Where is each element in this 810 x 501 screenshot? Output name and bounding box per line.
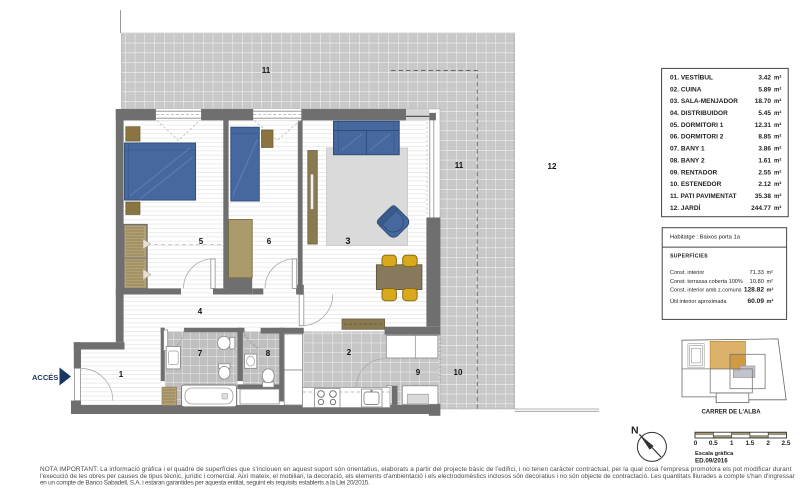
svg-text:en un compte de Banco Sabadell: en un compte de Banco Sabadell, S.A. i e… bbox=[40, 480, 370, 487]
svg-text:m²: m² bbox=[774, 86, 781, 93]
svg-text:04. DISTRIBUIDOR: 04. DISTRIBUIDOR bbox=[670, 110, 728, 117]
svg-text:12: 12 bbox=[548, 162, 557, 171]
svg-text:1.5: 1.5 bbox=[745, 440, 754, 447]
svg-text:10.80: 10.80 bbox=[749, 279, 764, 285]
svg-text:35.38: 35.38 bbox=[755, 193, 772, 200]
svg-text:07. BANY 1: 07. BANY 1 bbox=[670, 146, 705, 153]
svg-text:SUPERFÍCIES: SUPERFÍCIES bbox=[670, 252, 708, 260]
svg-text:m²: m² bbox=[774, 157, 781, 164]
svg-text:09. RENTADOR: 09. RENTADOR bbox=[670, 169, 717, 176]
svg-text:12. JARDÍ: 12. JARDÍ bbox=[670, 203, 701, 212]
svg-text:5.89: 5.89 bbox=[758, 86, 771, 93]
svg-text:11: 11 bbox=[455, 161, 464, 170]
svg-text:m²: m² bbox=[774, 110, 781, 117]
svg-text:2.55: 2.55 bbox=[758, 169, 771, 176]
svg-text:2: 2 bbox=[347, 348, 352, 357]
svg-text:3: 3 bbox=[345, 236, 350, 246]
svg-text:128.82: 128.82 bbox=[744, 287, 765, 294]
svg-text:60.09: 60.09 bbox=[747, 298, 764, 305]
svg-text:Habitatge : Baixos porta 1a: Habitatge : Baixos porta 1a bbox=[670, 235, 741, 241]
svg-text:m²: m² bbox=[774, 146, 781, 153]
svg-text:10. ESTENEDOR: 10. ESTENEDOR bbox=[670, 181, 722, 188]
svg-text:01. VESTÍBUL: 01. VESTÍBUL bbox=[670, 73, 713, 82]
svg-text:6: 6 bbox=[267, 237, 272, 246]
svg-text:2.5: 2.5 bbox=[782, 440, 791, 447]
svg-text:m²: m² bbox=[774, 205, 781, 212]
svg-text:m²: m² bbox=[767, 279, 774, 285]
svg-text:18.70: 18.70 bbox=[755, 98, 772, 105]
svg-text:3.86: 3.86 bbox=[758, 146, 771, 153]
svg-text:m²: m² bbox=[767, 298, 774, 305]
svg-text:m²: m² bbox=[774, 134, 781, 141]
svg-text:5: 5 bbox=[199, 237, 204, 246]
svg-text:m²: m² bbox=[774, 169, 781, 176]
svg-text:CARRER DE L'ALBA: CARRER DE L'ALBA bbox=[701, 410, 761, 416]
svg-text:7: 7 bbox=[198, 349, 203, 358]
svg-text:Escala gràfica: Escala gràfica bbox=[695, 451, 734, 457]
svg-text:08. BANY 2: 08. BANY 2 bbox=[670, 157, 705, 164]
svg-text:9: 9 bbox=[416, 368, 421, 377]
svg-text:Const. terrassa coberta 100%: Const. terrassa coberta 100% bbox=[670, 279, 743, 285]
svg-text:m²: m² bbox=[774, 75, 781, 82]
svg-text:0.5: 0.5 bbox=[709, 440, 718, 447]
svg-text:10: 10 bbox=[454, 368, 463, 377]
svg-text:71.33: 71.33 bbox=[749, 270, 764, 276]
svg-text:4: 4 bbox=[198, 307, 203, 316]
svg-text:Útil interior aproximada: Útil interior aproximada bbox=[670, 298, 727, 305]
svg-text:06. DORMITORI 2: 06. DORMITORI 2 bbox=[670, 134, 724, 141]
svg-text:0: 0 bbox=[694, 440, 698, 447]
svg-text:11: 11 bbox=[262, 66, 271, 75]
svg-text:12.31: 12.31 bbox=[755, 122, 772, 129]
svg-text:m²: m² bbox=[774, 122, 781, 129]
svg-text:05. DORMITORI 1: 05. DORMITORI 1 bbox=[670, 122, 724, 129]
svg-text:Const. interior amb z.comuns: Const. interior amb z.comuns bbox=[670, 288, 742, 294]
svg-text:03. SALA-MENJADOR: 03. SALA-MENJADOR bbox=[670, 98, 738, 105]
svg-text:244.77: 244.77 bbox=[751, 205, 771, 212]
svg-text:1.61: 1.61 bbox=[758, 157, 771, 164]
svg-text:N: N bbox=[631, 425, 639, 437]
svg-text:8: 8 bbox=[266, 349, 271, 358]
svg-text:m²: m² bbox=[774, 193, 781, 200]
svg-text:2.12: 2.12 bbox=[758, 181, 771, 188]
svg-text:NOTA IMPORTANT: La informació: NOTA IMPORTANT: La informació gràfica i … bbox=[40, 466, 792, 473]
svg-text:m²: m² bbox=[774, 181, 781, 188]
svg-text:m²: m² bbox=[774, 98, 781, 105]
svg-text:3.42: 3.42 bbox=[758, 75, 771, 82]
svg-text:m²: m² bbox=[767, 287, 774, 294]
svg-text:11. PATI PAVIMENTAT: 11. PATI PAVIMENTAT bbox=[670, 193, 736, 200]
svg-text:02. CUINA: 02. CUINA bbox=[670, 86, 702, 93]
svg-text:ACCÉS: ACCÉS bbox=[32, 373, 58, 382]
svg-text:2: 2 bbox=[766, 440, 770, 447]
svg-text:m²: m² bbox=[767, 270, 774, 276]
svg-text:1: 1 bbox=[730, 440, 734, 447]
svg-text:8.85: 8.85 bbox=[758, 134, 771, 141]
svg-text:Const. interior: Const. interior bbox=[670, 270, 704, 276]
svg-text:ED.09/2016: ED.09/2016 bbox=[695, 458, 728, 465]
svg-text:5.45: 5.45 bbox=[758, 110, 771, 117]
svg-text:1: 1 bbox=[119, 370, 124, 379]
